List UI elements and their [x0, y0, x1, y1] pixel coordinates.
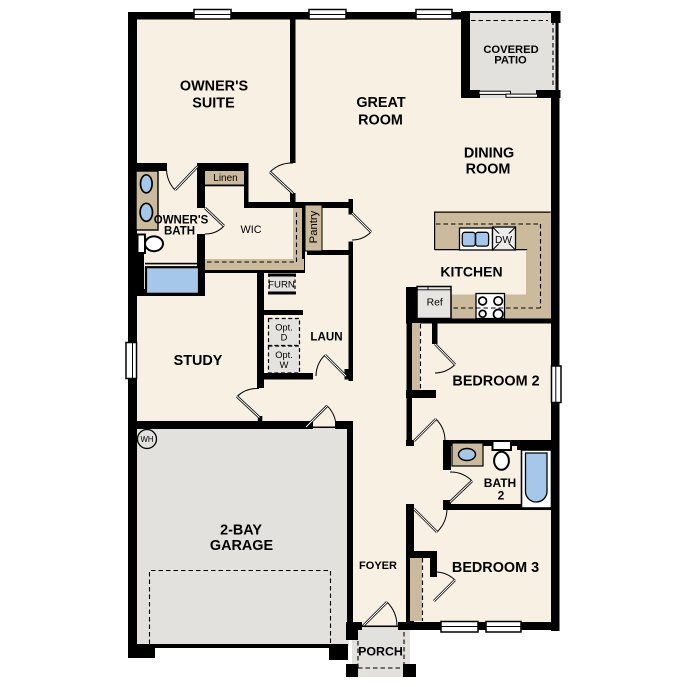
svg-text:W: W	[280, 360, 289, 370]
svg-text:Ref: Ref	[427, 298, 443, 309]
svg-text:FOYER: FOYER	[359, 560, 397, 572]
svg-text:ROOM: ROOM	[358, 113, 403, 129]
svg-text:Linen: Linen	[213, 173, 237, 184]
svg-text:DINING: DINING	[464, 146, 514, 162]
svg-text:2-BAY: 2-BAY	[220, 523, 262, 539]
svg-text:KITCHEN: KITCHEN	[440, 264, 502, 280]
svg-text:Pantry: Pantry	[308, 210, 320, 243]
svg-text:LAUN: LAUN	[310, 331, 342, 344]
svg-text:BEDROOM 3: BEDROOM 3	[452, 560, 539, 576]
svg-text:Opt.: Opt.	[275, 350, 293, 360]
svg-text:2: 2	[498, 489, 505, 503]
svg-text:WIC: WIC	[241, 224, 262, 236]
svg-text:WH: WH	[141, 435, 154, 444]
svg-text:SUITE: SUITE	[192, 96, 235, 112]
svg-text:DW: DW	[495, 235, 512, 246]
svg-text:OWNER'S: OWNER'S	[180, 79, 249, 95]
svg-text:PATIO: PATIO	[494, 55, 527, 67]
svg-text:BATH: BATH	[164, 226, 195, 238]
svg-text:GARAGE: GARAGE	[210, 538, 274, 554]
svg-text:FURN: FURN	[268, 280, 295, 291]
svg-text:BEDROOM 2: BEDROOM 2	[452, 374, 539, 390]
svg-text:STUDY: STUDY	[174, 353, 223, 369]
svg-text:PORCH: PORCH	[358, 645, 403, 659]
svg-text:ROOM: ROOM	[466, 162, 511, 178]
svg-text:D: D	[281, 333, 288, 343]
svg-text:Opt.: Opt.	[275, 323, 293, 333]
svg-text:GREAT: GREAT	[356, 95, 406, 111]
